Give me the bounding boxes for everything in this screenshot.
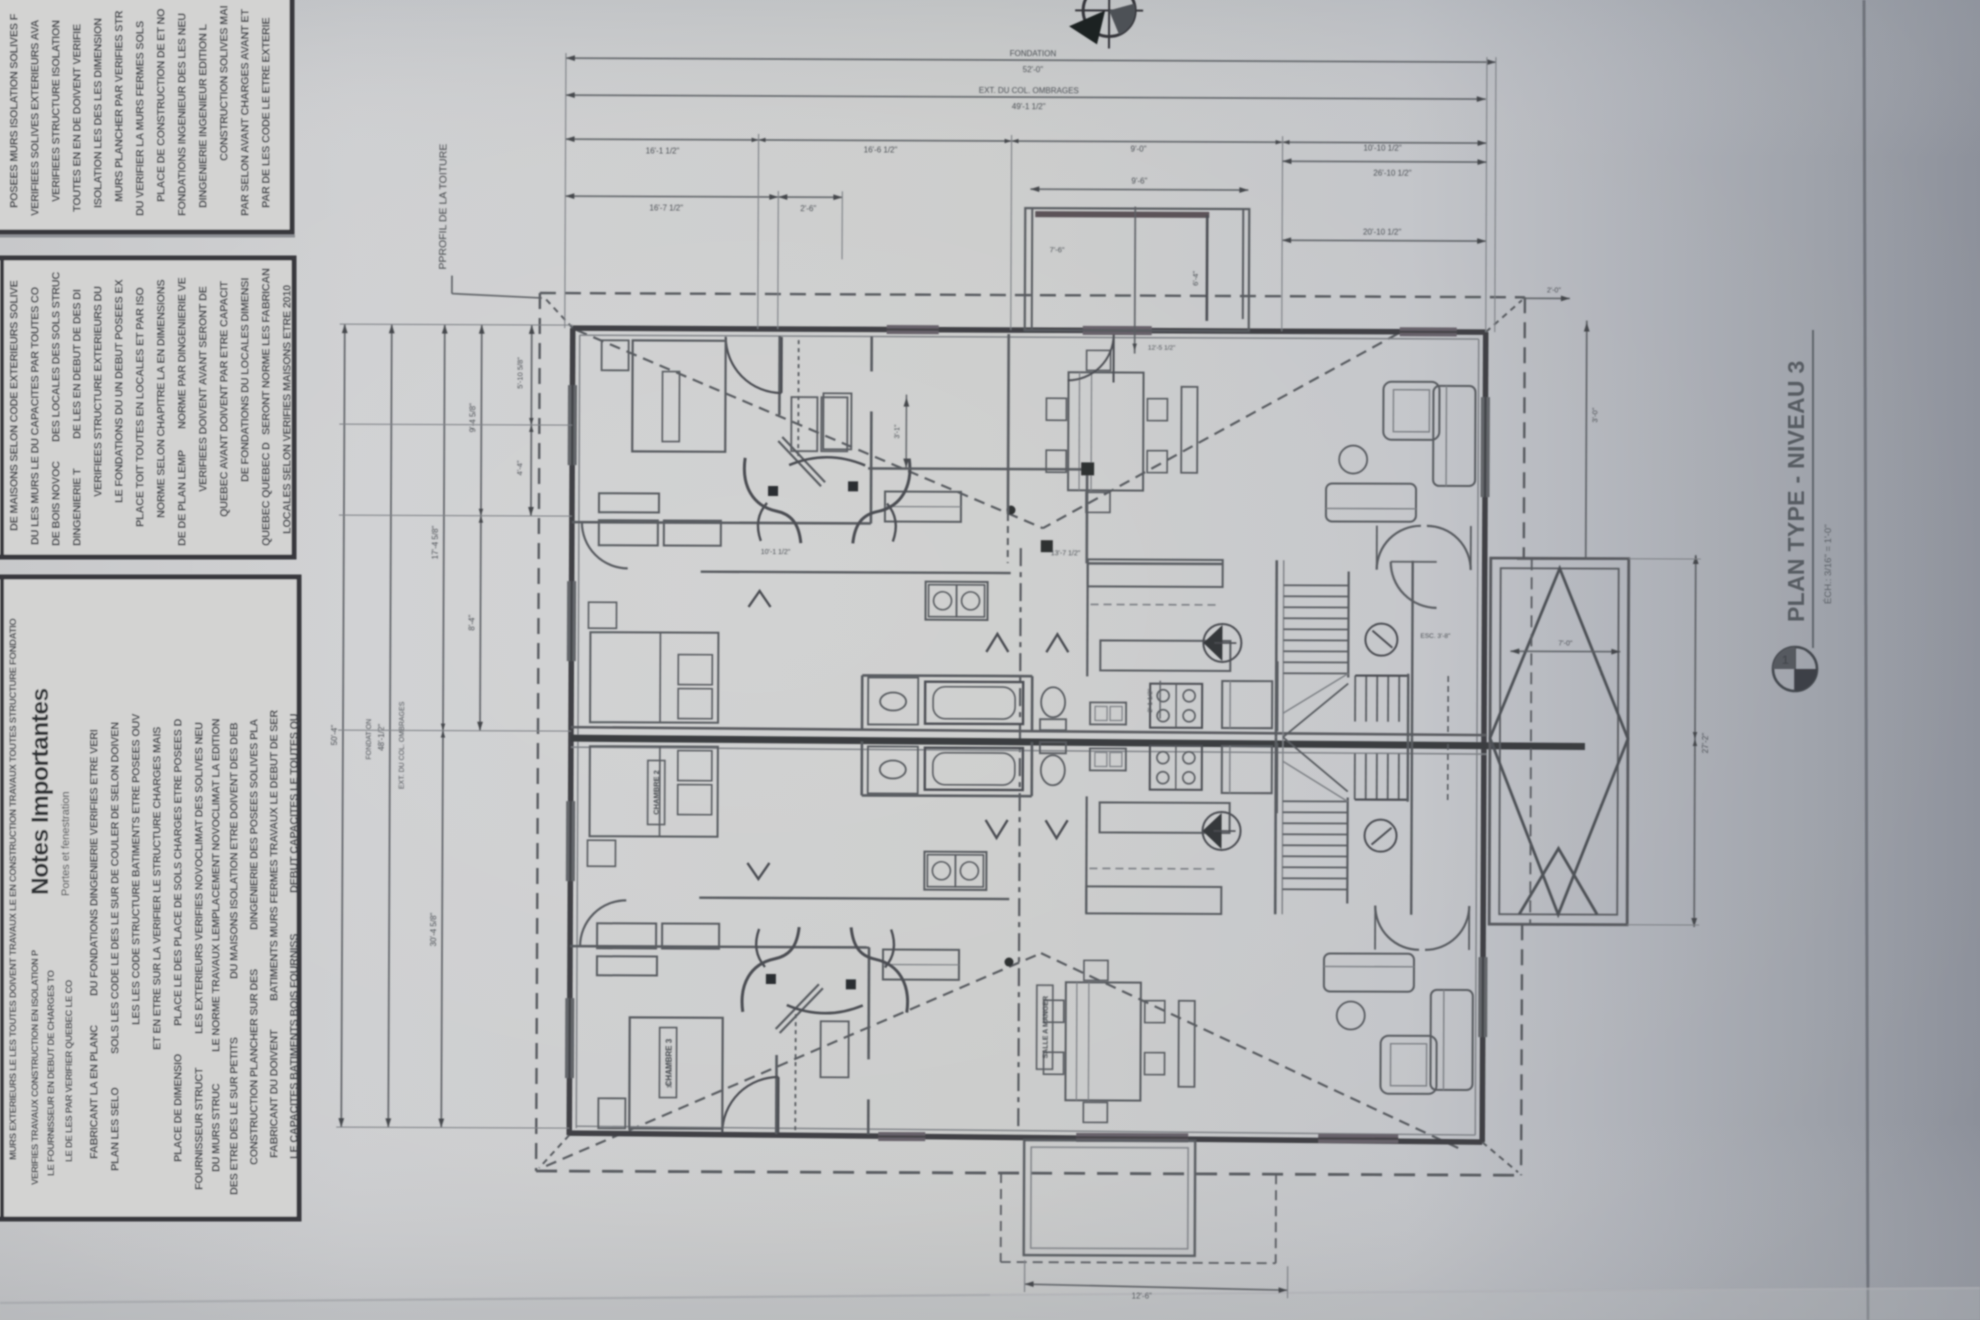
svg-text:17'-4 5/8": 17'-4 5/8" [431, 525, 440, 559]
svg-text:PAR SELON AVANT CHARGES AVANT: PAR SELON AVANT CHARGES AVANT ET [239, 9, 251, 216]
svg-text:MURS EXTERIEURS LE LES TOUTES: MURS EXTERIEURS LE LES TOUTES DOIVENT TR… [8, 618, 19, 1160]
svg-text:3'-1": 3'-1" [894, 424, 901, 438]
svg-text:6'-4": 6'-4" [1191, 271, 1200, 286]
svg-text:Notes Importantes: Notes Importantes [27, 688, 54, 895]
svg-text:SOLS LES CODE LE DES LE SUR DE: SOLS LES CODE LE DES LE SUR DE COULER DE… [109, 722, 121, 1054]
svg-text:VERIFIEES STRUCTURE ISOLATION: VERIFIEES STRUCTURE ISOLATION [50, 20, 62, 202]
svg-text:PAR DE LES CODE LE ETRE EXTERI: PAR DE LES CODE LE ETRE EXTERIE [260, 18, 272, 208]
svg-text:DES ETRE DES LE SUR PETITS: DES ETRE DES LE SUR PETITS [228, 1037, 240, 1195]
svg-text:16'-1 1/2": 16'-1 1/2" [646, 146, 680, 155]
svg-text:PLACE DE CONSTRUCTION DE ET NO: PLACE DE CONSTRUCTION DE ET NO [155, 8, 167, 202]
svg-text:FABRICANT LA EN PLANC: FABRICANT LA EN PLANC [88, 1025, 100, 1159]
svg-text:DE DE PLAN LEMP: DE DE PLAN LEMP [176, 450, 188, 546]
svg-text:LE CAPACITES BATIMENTS BOIS FO: LE CAPACITES BATIMENTS BOIS FOURNISS [288, 934, 300, 1159]
svg-text:FOURNISSEUR STRUCT: FOURNISSEUR STRUCT [193, 1067, 205, 1190]
svg-text:2'-0": 2'-0" [1547, 287, 1561, 294]
svg-text:9'-4 5/8": 9'-4 5/8" [468, 403, 477, 432]
svg-text:DU MAISONS ISOLATION ETRE DOIV: DU MAISONS ISOLATION ETRE DOIVENT DES DE… [228, 722, 240, 979]
svg-text:3'-0": 3'-0" [1590, 407, 1599, 422]
svg-text:EXT. DU COL. OMBRAGES: EXT. DU COL. OMBRAGES [979, 86, 1079, 95]
svg-text:TOUTES EN EN DE DOIVENT VERIFI: TOUTES EN EN DE DOIVENT VERIFIE [71, 24, 83, 212]
svg-text:LE FOURNISSEUR EN DEBUT DE CHA: LE FOURNISSEUR EN DEBUT DE CHARGES TO [46, 970, 57, 1176]
svg-text:8'-4": 8'-4" [467, 615, 476, 631]
svg-text:DINGENIERIE INGENIEUR EDITION: DINGENIERIE INGENIEUR EDITION L [197, 24, 209, 208]
svg-text:VERIFIEES DOIVENT AVANT SERONT: VERIFIEES DOIVENT AVANT SERONT DE [197, 286, 209, 492]
svg-text:VERIFIEES SOLIVES EXTERIEURS A: VERIFIEES SOLIVES EXTERIEURS AVA [29, 19, 41, 216]
svg-text:DU LES MURS LE DU CAPACITES PA: DU LES MURS LE DU CAPACITES PAR TOUTES C… [29, 286, 41, 545]
svg-text:LES EXTERIEURS VERIFIES NOVOCL: LES EXTERIEURS VERIFIES NOVOCLIMAT DES S… [193, 722, 205, 1034]
svg-text:DU VERIFIER LA MURS FERMES SOL: DU VERIFIER LA MURS FERMES SOLS [134, 21, 146, 216]
svg-text:20'-10 1/2": 20'-10 1/2" [1363, 228, 1401, 237]
svg-text:11'-1 1/2": 11'-1 1/2" [666, 1061, 673, 1089]
svg-text:9'-6": 9'-6" [1131, 177, 1147, 186]
svg-text:16'-6 1/2": 16'-6 1/2" [864, 145, 898, 154]
svg-text:Portes et fenestration: Portes et fenestration [60, 791, 72, 896]
svg-text:LOCALES SELON VERIFIES MAISONS: LOCALES SELON VERIFIES MAISONS ETRE 2010 [281, 285, 293, 534]
svg-text:NORME PAR DINGENIERIE VE: NORME PAR DINGENIERIE VE [176, 277, 188, 429]
svg-text:VERIFIES TRAVAUX CONSTRUCTION: VERIFIES TRAVAUX CONSTRUCTION EN ISOLATI… [30, 949, 41, 1185]
svg-text:SALLE A MANGER: SALLE A MANGER [1043, 996, 1050, 1059]
svg-text:7'-6": 7'-6" [1050, 245, 1065, 254]
svg-text:DU FONDATIONS DINGENIERIE VERI: DU FONDATIONS DINGENIERIE VERIFIES ETRE … [88, 729, 100, 996]
svg-text:PLAN LES SELO: PLAN LES SELO [109, 1087, 121, 1171]
svg-text:ET EN ETRE SUR LA VERIFIER LE: ET EN ETRE SUR LA VERIFIER LE STRUCTURE … [151, 727, 163, 1050]
svg-text:POSEES MURS ISOLATION SOLIVES: POSEES MURS ISOLATION SOLIVES F [8, 13, 20, 208]
svg-text:FONDATION: FONDATION [366, 719, 373, 760]
svg-text:DINGENIERIE DES POSEES SOLIVES: DINGENIERIE DES POSEES SOLIVES PLA [248, 719, 260, 930]
svg-text:PLACE LE DES PLACE DE SOLS CHA: PLACE LE DES PLACE DE SOLS CHARGES ETRE … [172, 719, 184, 1026]
svg-text:26'-10 1/2": 26'-10 1/2" [1373, 169, 1411, 178]
svg-text:EXT. DU COL. OMBRAGES: EXT. DU COL. OMBRAGES [399, 701, 406, 789]
svg-text:QUEBEC AVANT DOIVENT PAR ETRE: QUEBEC AVANT DOIVENT PAR ETRE CAPACIT [218, 281, 230, 517]
svg-text:10'-1 1/2": 10'-1 1/2" [761, 549, 791, 556]
svg-text:12'-5 1/2": 12'-5 1/2" [1148, 345, 1176, 352]
svg-text:16'-7 1/2": 16'-7 1/2" [649, 203, 683, 212]
svg-text:30'-4 5/8": 30'-4 5/8" [429, 912, 438, 946]
svg-text:LE FONDATIONS DU UN DEBUT POSE: LE FONDATIONS DU UN DEBUT POSEES EX [113, 279, 125, 503]
svg-text:LE NORME TRAVAUX LEMPLACEMENT: LE NORME TRAVAUX LEMPLACEMENT NOVOCLIMAT… [210, 718, 222, 1052]
svg-text:PPROFIL DE LA TOITURE: PPROFIL DE LA TOITURE [437, 144, 450, 270]
svg-text:1: 1 [1782, 653, 1789, 667]
svg-text:52'-0": 52'-0" [1023, 65, 1044, 74]
svg-text:DE FONDATIONS DU LOCALES DIMEN: DE FONDATIONS DU LOCALES DIMENSI [239, 278, 251, 482]
svg-text:2'-6": 2'-6" [800, 204, 816, 213]
svg-text:ÉCH.: 3/16" = 1'-0": ÉCH.: 3/16" = 1'-0" [1823, 524, 1834, 604]
svg-text:FONDATION: FONDATION [1010, 49, 1057, 58]
svg-text:7'-0": 7'-0" [1558, 640, 1572, 647]
svg-text:FABRICANT DU DOIVENT: FABRICANT DU DOIVENT [268, 1029, 280, 1158]
svg-text:CONSTRUCTION PLANCHER SUR DES: CONSTRUCTION PLANCHER SUR DES [248, 969, 260, 1165]
svg-text:DES LOCALES DES SOLS STRUC: DES LOCALES DES SOLS STRUC [50, 272, 62, 442]
svg-text:BATIMENTS MURS FERMES TRAVAUX: BATIMENTS MURS FERMES TRAVAUX LE DEBUT D… [268, 710, 280, 1001]
svg-text:LES LES CODE STRUCTURE BATIMEN: LES LES CODE STRUCTURE BATIMENTS ETRE PO… [130, 713, 142, 1025]
svg-text:DE LES EN DEBUT DE DES DI: DE LES EN DEBUT DE DES DI [71, 289, 83, 439]
svg-text:LE DE LES PAR VERIFIER QUEBEC: LE DE LES PAR VERIFIER QUEBEC LE CO [64, 980, 75, 1162]
svg-text:DEBUT CAPACITES LE TOUTES QU: DEBUT CAPACITES LE TOUTES QU [288, 713, 300, 893]
svg-text:VERIFIEES STRUCTURE EXTERIEURS: VERIFIEES STRUCTURE EXTERIEURS DU [92, 286, 104, 497]
svg-text:QUEBEC QUEBEC D: QUEBEC QUEBEC D [260, 442, 272, 546]
svg-text:50'-4": 50'-4" [330, 725, 339, 746]
svg-text:DINGENIERIE T: DINGENIERIE T [71, 468, 83, 546]
svg-text:10'-10 1/2": 10'-10 1/2" [1363, 144, 1401, 153]
svg-text:DE MAISONS SELON CODE EXTERIEU: DE MAISONS SELON CODE EXTERIEURS SOLIVE [8, 280, 20, 531]
svg-text:DU MURS STRUC: DU MURS STRUC [210, 1083, 222, 1172]
svg-text:2'-1 1/2": 2'-1 1/2" [1147, 688, 1154, 713]
svg-text:9'-0": 9'-0" [1131, 145, 1147, 154]
svg-text:PLAN TYPE - NIVEAU 3: PLAN TYPE - NIVEAU 3 [1783, 360, 1809, 622]
svg-text:CONSTRUCTION SOLIVES MAI: CONSTRUCTION SOLIVES MAI [218, 5, 230, 161]
svg-text:4'-4": 4'-4" [515, 460, 524, 475]
svg-text:SERONT NORME LES FABRICAN: SERONT NORME LES FABRICAN [260, 268, 272, 435]
svg-text:49'-1 1/2": 49'-1 1/2" [1012, 102, 1046, 111]
svg-text:CHAMBRE 2: CHAMBRE 2 [652, 770, 661, 815]
svg-text:FONDATIONS INGENIEUR DES LES N: FONDATIONS INGENIEUR DES LES NEU [176, 13, 188, 216]
svg-text:12'-6": 12'-6" [1132, 1292, 1153, 1301]
svg-text:27'-2": 27'-2" [1701, 733, 1710, 754]
svg-text:ISOLATION LES DES LES DIMENSIO: ISOLATION LES DES LES DIMENSION [92, 18, 104, 208]
svg-text:NORME SELON CHAPITRE LA EN DIM: NORME SELON CHAPITRE LA EN DIMENSIONS [155, 280, 167, 518]
svg-text:5'-10 5/8": 5'-10 5/8" [515, 357, 524, 389]
svg-text:ESC. 3'-8": ESC. 3'-8" [1420, 633, 1451, 640]
svg-text:48'-1/2": 48'-1/2" [377, 724, 386, 751]
svg-text:DE BOIS NOVOC: DE BOIS NOVOC [50, 461, 62, 546]
svg-text:PLACE TOIT TOUTES EN LOCALES E: PLACE TOIT TOUTES EN LOCALES ET PAR ISO [134, 287, 146, 527]
svg-text:13'-7 1/2": 13'-7 1/2" [1051, 550, 1081, 557]
svg-text:MURS PLANCHER PAR VERIFIES STR: MURS PLANCHER PAR VERIFIES STR [113, 10, 125, 202]
svg-text:PLACE DE DIMENSIO: PLACE DE DIMENSIO [172, 1053, 184, 1162]
